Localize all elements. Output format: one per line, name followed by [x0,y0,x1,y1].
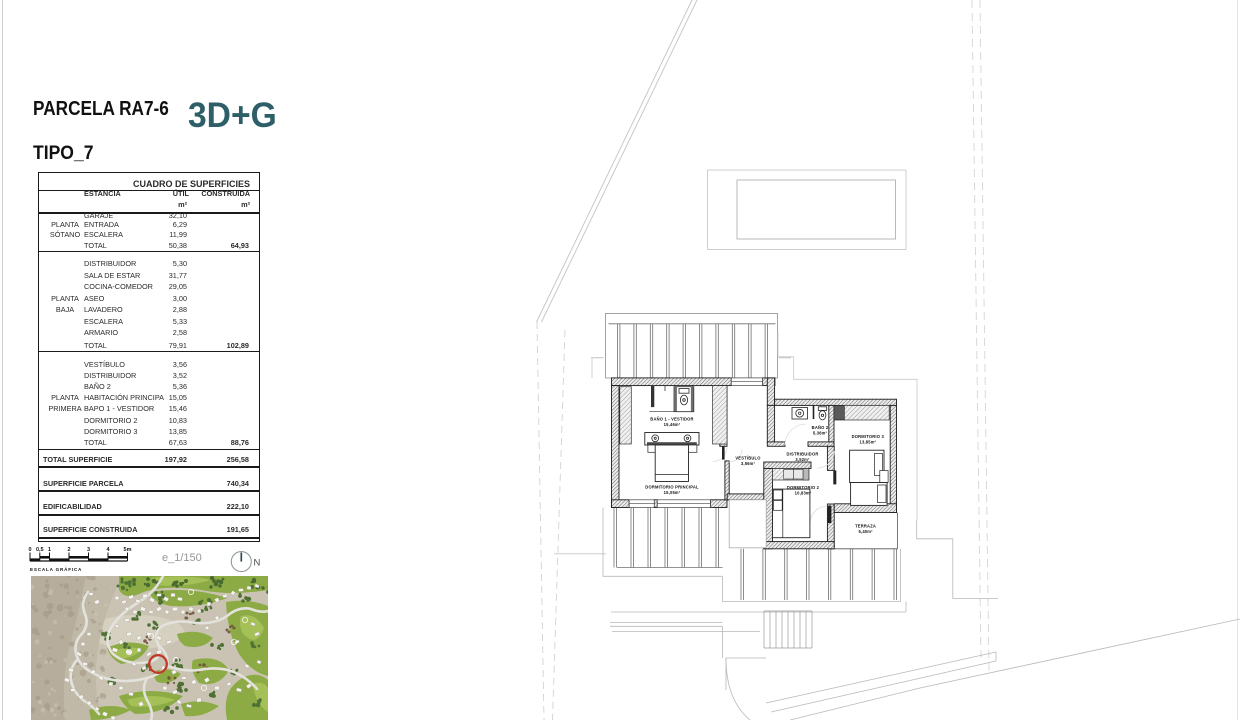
svg-text:DORMITORIO PRINCIPAL: DORMITORIO PRINCIPAL [645,485,699,490]
svg-text:5,36m²: 5,36m² [813,430,828,435]
svg-text:5,40m²: 5,40m² [859,529,874,534]
svg-text:15,05m²: 15,05m² [664,490,681,495]
svg-text:3,52m²: 3,52m² [795,457,810,462]
svg-text:BAÑO 1 - VESTIDOR: BAÑO 1 - VESTIDOR [650,417,693,422]
svg-text:DISTRIBUIDOR: DISTRIBUIDOR [787,452,819,457]
svg-text:VESTÍBULO: VESTÍBULO [735,456,761,461]
svg-text:DORMITORIO 3: DORMITORIO 3 [852,434,885,439]
svg-text:13,85m²: 13,85m² [859,439,876,444]
svg-text:TERRAZA: TERRAZA [855,524,876,529]
svg-text:3,56m²: 3,56m² [741,461,756,466]
svg-text:DORMITORIO 2: DORMITORIO 2 [787,485,820,490]
svg-text:BAÑO 2: BAÑO 2 [812,425,829,430]
svg-text:15,46m²: 15,46m² [664,422,681,427]
svg-text:10,83m²: 10,83m² [795,490,812,495]
